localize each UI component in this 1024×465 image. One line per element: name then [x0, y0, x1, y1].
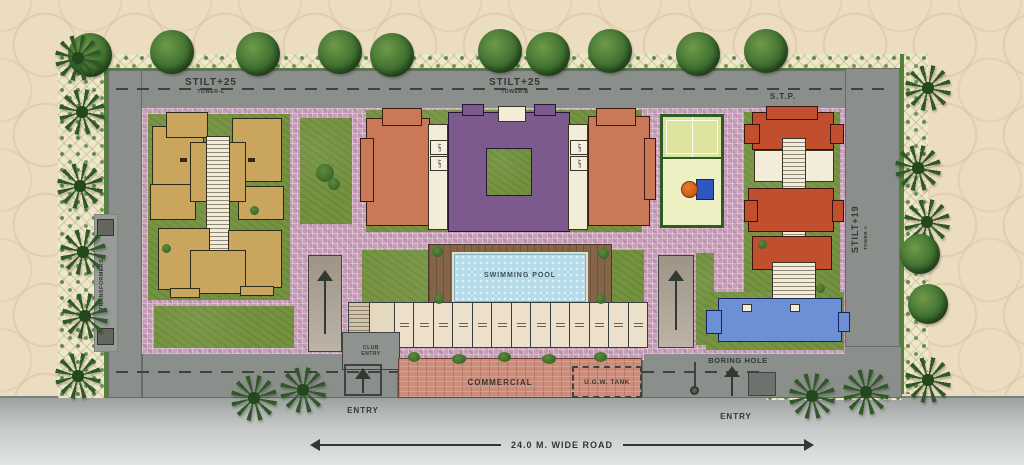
- tower-b-lift-east-2: LIFT: [570, 156, 588, 171]
- tree-icon: [588, 29, 632, 73]
- palm-tree-icon: [55, 35, 101, 81]
- entry-east-block: [748, 372, 776, 396]
- tree-icon: [676, 32, 720, 76]
- road-arrow-right-icon: [623, 444, 812, 446]
- shop-unit: [452, 303, 471, 347]
- tower-c-stilt: STILT+25: [146, 77, 276, 88]
- lift-label: LIFT: [437, 143, 442, 151]
- road-width-label: 24.0 M. WIDE ROAD: [511, 440, 613, 450]
- tower-a-block: [744, 124, 760, 144]
- tower-b-wing-east: [588, 116, 650, 226]
- tower-a-block: [766, 106, 818, 120]
- shop-unit: [530, 303, 549, 347]
- shrub: [498, 352, 511, 362]
- palm-tree-icon: [57, 163, 103, 209]
- shop-unit: [472, 303, 491, 347]
- tree-icon: [478, 29, 522, 73]
- tower-c-block: [170, 288, 200, 298]
- commercial-label: COMMERCIAL: [420, 378, 580, 387]
- lawn-tower-c-south: [154, 306, 294, 348]
- shrub: [452, 354, 466, 364]
- entry-west-label: ENTRY: [334, 406, 392, 415]
- shop-unit: [433, 303, 452, 347]
- tower-c-entrance-mark: [248, 158, 255, 162]
- shrub: [596, 294, 606, 304]
- tree-icon: [744, 29, 788, 73]
- tower-b-lift-east-1: LIFT: [570, 140, 588, 155]
- lift-label: LIFT: [577, 159, 582, 167]
- tower-c-block: [166, 112, 208, 138]
- palm-tree-icon: [60, 229, 106, 275]
- shrub: [542, 354, 556, 364]
- shop-unit: [491, 303, 510, 347]
- tower-c-block: [240, 286, 274, 296]
- shop-unit: [608, 303, 627, 347]
- boring-hole-point: [690, 386, 699, 395]
- shrub: [816, 284, 825, 293]
- tower-b-inner-court: [486, 148, 532, 196]
- tower-a-name: TOWER A: [863, 214, 871, 262]
- shop-unit: [511, 303, 530, 347]
- sports-court: [660, 114, 724, 228]
- tower-a-block: [832, 200, 844, 222]
- tower-a-stilt: STILT+19: [850, 196, 863, 262]
- lift-label: LIFT: [437, 159, 442, 167]
- tower-a-annex-block: [718, 298, 842, 342]
- tower-c-entrance-mark: [180, 158, 187, 162]
- tower-b-wing-west: [360, 138, 374, 202]
- tower-a-annex-block: [706, 310, 722, 334]
- palm-tree-icon: [59, 89, 105, 135]
- palm-tree-icon: [895, 145, 941, 191]
- shop-unit: [413, 303, 432, 347]
- tree-icon: [900, 234, 940, 274]
- tower-a-block: [744, 200, 758, 222]
- tower-b-stilt: STILT+25: [450, 77, 580, 88]
- basketball-icon: [681, 181, 698, 198]
- shop-unit: [569, 303, 588, 347]
- tree-icon: [150, 30, 194, 74]
- tower-a-annex-core: [742, 304, 752, 312]
- tower-b-stilt-label: STILT+25 TOWER-B: [450, 77, 580, 95]
- tower-a-block: [830, 124, 844, 144]
- tower-b-lift-west-1: LIFT: [430, 140, 448, 155]
- tower-b-wing-east: [644, 138, 656, 200]
- tower-b-wing-west: [382, 108, 422, 126]
- site-plan: LIFT LIFT LIFT LIFT SWIMMING POOL: [0, 0, 1024, 465]
- palm-tree-icon: [905, 65, 951, 111]
- ramp-east-arrow-icon: [666, 270, 686, 330]
- shop-unit: [550, 303, 569, 347]
- club-entry-label: CLUB ENTRY: [356, 345, 386, 358]
- basketball-board: [696, 179, 714, 200]
- shrub: [598, 248, 609, 259]
- palm-tree-icon: [62, 293, 108, 339]
- road-width-callout: 24.0 M. WIDE ROAD: [312, 440, 812, 450]
- shrub: [250, 206, 259, 215]
- shop-unit: [628, 303, 647, 347]
- palm-tree-icon: [55, 353, 101, 399]
- tower-c-name: TOWER-C: [146, 89, 276, 95]
- tree-icon: [526, 32, 570, 76]
- tower-a-annex-core: [790, 304, 800, 312]
- shrub: [434, 294, 444, 304]
- boring-hole-label: BORING HOLE: [698, 356, 778, 365]
- tree-icon: [236, 32, 280, 76]
- tower-b-core-top: [498, 106, 526, 122]
- tower-a-core-south: [772, 262, 816, 302]
- swimming-pool-label: SWIMMING POOL: [452, 272, 588, 279]
- tower-b-center: [534, 104, 556, 116]
- entry-west-arrow-icon: [353, 368, 373, 393]
- palm-tree-icon: [789, 373, 835, 419]
- palm-tree-icon: [843, 369, 889, 415]
- entry-east-label: ENTRY: [704, 412, 768, 421]
- ramp-west-arrow-icon: [315, 270, 335, 334]
- road-arrow-left-icon: [312, 444, 501, 446]
- palm-tree-icon: [280, 367, 326, 413]
- palm-tree-icon: [905, 357, 951, 403]
- shrub: [594, 352, 607, 362]
- tower-a-block: [748, 188, 834, 232]
- tower-b-wing-east: [596, 108, 636, 126]
- tennis-court: [663, 117, 721, 159]
- stp-label: S.T.P.: [748, 92, 818, 101]
- tree-icon: [908, 284, 948, 324]
- tower-a-annex-block: [838, 312, 850, 332]
- shrub: [408, 352, 420, 362]
- tower-b-center: [462, 104, 484, 116]
- tree-icon: [370, 33, 414, 77]
- shrub: [432, 246, 443, 257]
- shrub: [162, 244, 171, 253]
- boring-hole-leader: [694, 362, 696, 386]
- transformer-box: [97, 219, 114, 236]
- lift-label: LIFT: [577, 143, 582, 151]
- shrub: [758, 240, 767, 249]
- tree-icon: [318, 30, 362, 74]
- tower-b-wing-west: [366, 118, 430, 226]
- shop-unit: [589, 303, 608, 347]
- entry-east-arrow-icon: [722, 366, 742, 396]
- shrub: [328, 178, 340, 190]
- tower-b-lift-west-2: LIFT: [430, 156, 448, 171]
- tower-b-name: TOWER-B: [450, 89, 580, 95]
- tower-c-stilt-label: STILT+25 TOWER-C: [146, 77, 276, 95]
- palm-tree-icon: [231, 375, 277, 421]
- ugw-tank-label: U.G.W. TANK: [572, 379, 642, 386]
